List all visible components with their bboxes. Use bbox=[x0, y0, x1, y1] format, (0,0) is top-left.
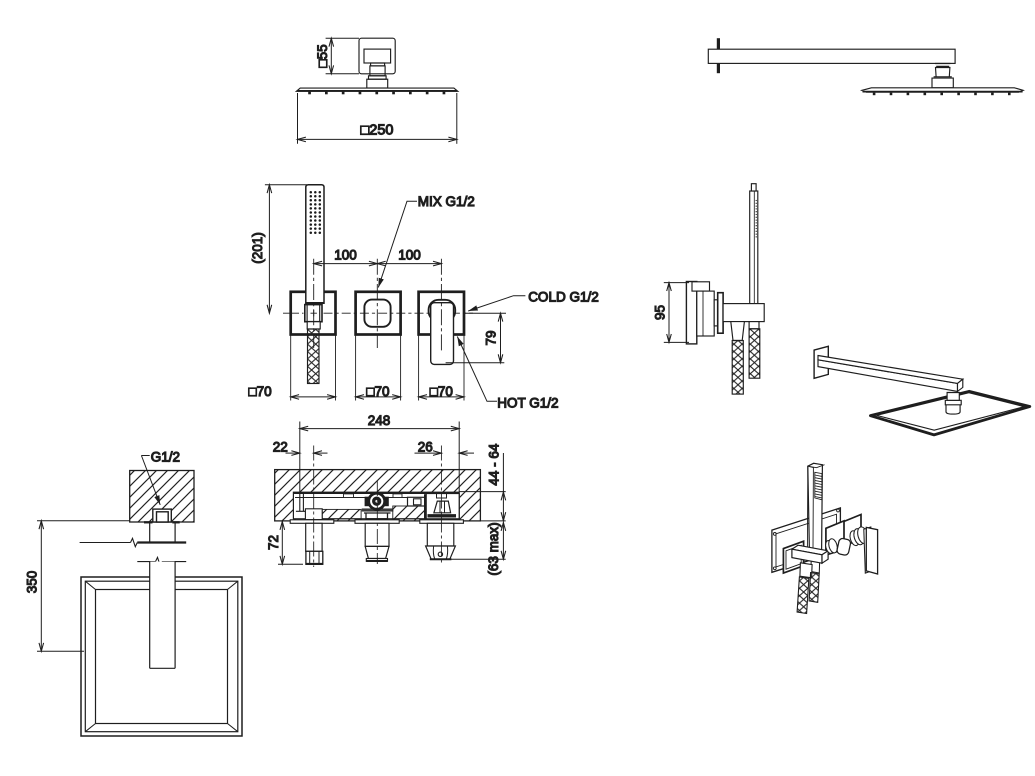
svg-text:350: 350 bbox=[25, 571, 40, 594]
svg-text:HOT G1/2: HOT G1/2 bbox=[497, 396, 558, 411]
svg-text:(201): (201) bbox=[250, 232, 265, 264]
svg-text:72: 72 bbox=[266, 535, 281, 550]
svg-text:95: 95 bbox=[653, 305, 668, 320]
svg-text:248: 248 bbox=[368, 413, 391, 428]
svg-text:MIX G1/2: MIX G1/2 bbox=[418, 194, 475, 209]
svg-text:100: 100 bbox=[334, 248, 357, 263]
svg-text:□70: □70 bbox=[249, 384, 272, 399]
svg-text:COLD G1/2: COLD G1/2 bbox=[528, 290, 599, 305]
svg-text:G1/2: G1/2 bbox=[151, 449, 180, 464]
svg-text:44 - 64: 44 - 64 bbox=[487, 443, 502, 486]
svg-text:22: 22 bbox=[273, 440, 288, 455]
svg-text:□250: □250 bbox=[361, 123, 394, 139]
svg-text:26: 26 bbox=[418, 440, 433, 455]
svg-text:100: 100 bbox=[398, 248, 421, 263]
svg-text:□70: □70 bbox=[430, 384, 453, 399]
svg-text:□70: □70 bbox=[366, 384, 389, 399]
svg-text:□55: □55 bbox=[315, 44, 330, 67]
svg-text:79: 79 bbox=[484, 330, 499, 345]
svg-text:(63 max): (63 max) bbox=[486, 522, 501, 575]
